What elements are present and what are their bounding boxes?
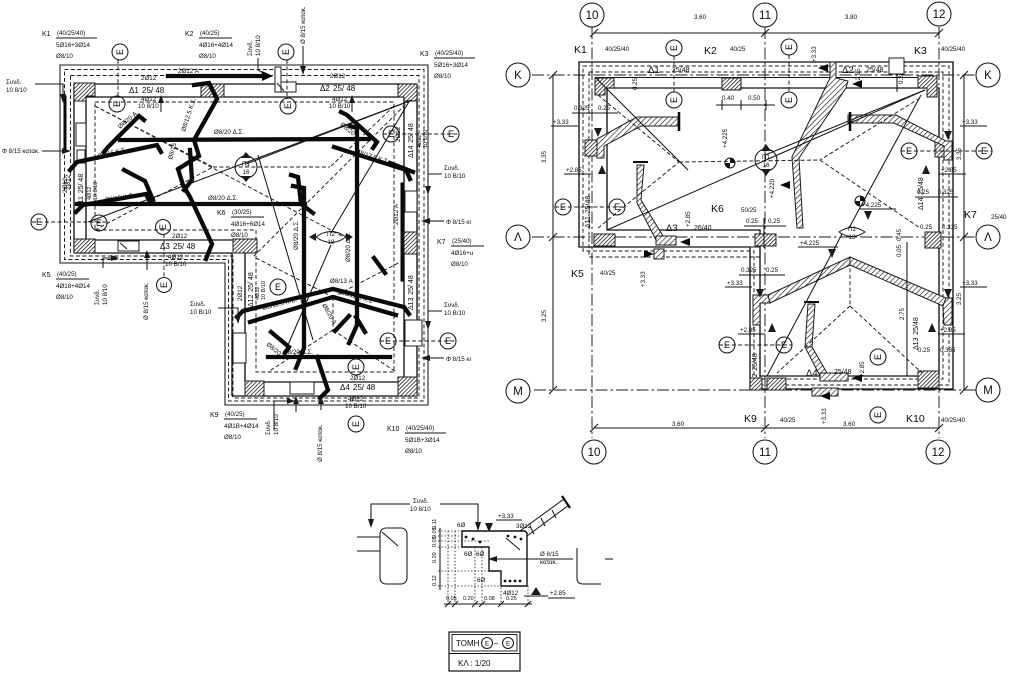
svg-text:10 8/10: 10 8/10 [93,182,99,200]
svg-text:2Ø12: 2Ø12 [350,375,366,382]
svg-text:10 Β/10: 10 Β/10 [444,310,466,317]
svg-text:10 Β/10: 10 Β/10 [261,281,267,300]
svg-text:2Ø12 Α: 2Ø12 Α [178,68,200,75]
svg-text:0.12: 0.12 [432,575,438,586]
svg-text:25/48: 25/48 [866,67,884,74]
svg-text:16: 16 [763,162,770,169]
svg-text:Ε: Ε [115,49,125,55]
svg-text:(40/25/40): (40/25/40) [406,425,434,432]
svg-text:Ε: Ε [275,282,281,292]
svg-text:4Ø1Β+4Ø14: 4Ø1Β+4Ø14 [224,423,259,430]
svg-text:K5: K5 [571,268,584,280]
svg-text:Ø8/10: Ø8/10 [434,73,451,80]
svg-text:Ε: Ε [351,364,361,370]
svg-text:Ø8/20 Δ.Σ.: Ø8/20 Δ.Σ. [293,220,300,250]
svg-text:Ε: Ε [112,101,122,107]
svg-text:Ε: Ε [159,282,169,288]
svg-text:Ε: Ε [96,218,102,228]
svg-text:Ε: Ε [669,97,679,103]
svg-text:(40/25): (40/25) [200,30,220,37]
svg-text:4Ø18+4Ø14: 4Ø18+4Ø14 [56,283,90,290]
svg-text:25/40: 25/40 [991,214,1007,221]
svg-text:Δ11 25/ 48: Δ11 25/ 48 [78,174,85,208]
svg-text:Δ4 25/ 48: Δ4 25/ 48 [340,383,376,392]
svg-text:+2.85: +2.85 [685,211,692,227]
svg-text:Δ1: Δ1 [648,65,660,76]
svg-text:Ε: Ε [669,45,679,51]
svg-text:+2.85: +2.85 [940,327,956,334]
svg-text:0.05: 0.05 [896,244,903,257]
svg-text:0.25: 0.25 [918,347,931,354]
svg-text:+2.85: +2.85 [550,590,566,597]
svg-text:ΚΛ : 1/20: ΚΛ : 1/20 [458,659,491,668]
svg-text:Ε: Ε [448,129,454,139]
svg-text:6Ø: 6Ø [476,551,484,558]
svg-text:Φ 8/15 κατακ.: Φ 8/15 κατακ. [2,148,40,155]
svg-text:Ε: Ε [873,354,883,360]
svg-text:2Ø12: 2Ø12 [395,126,402,142]
svg-text:10 Β/10: 10 Β/10 [190,309,212,316]
svg-text:10 8/10: 10 8/10 [138,103,159,110]
svg-text:2Ø12: 2Ø12 [330,73,346,80]
svg-text:3.25: 3.25 [541,309,548,322]
svg-text:10 8/10: 10 8/10 [423,130,429,148]
svg-text:+4.220: +4.220 [769,178,776,198]
svg-text:26/40: 26/40 [694,225,712,232]
svg-text:Ε: Ε [445,336,451,346]
svg-text:Ø8/10: Ø8/10 [199,53,216,60]
svg-text:40/25: 40/25 [730,46,746,53]
svg-text:3.60: 3.60 [672,421,685,428]
svg-text:K2: K2 [704,45,717,57]
svg-text:4Ø12: 4Ø12 [168,254,184,261]
svg-text:(40/25): (40/25) [225,411,245,418]
svg-text:Ε: Ε [388,129,394,139]
svg-text:Ε: Ε [784,44,794,50]
svg-text:10 8/10: 10 8/10 [410,506,431,513]
svg-text:Ø8/10: Ø8/10 [231,232,248,239]
svg-text:2Ø12: 2Ø12 [141,75,157,82]
svg-text:0.08: 0.08 [484,596,495,602]
svg-text:K7: K7 [964,209,977,221]
svg-text:+2.85: +2.85 [855,68,862,84]
svg-text:(40/25/40): (40/25/40) [435,50,463,57]
svg-text:Δ3: Δ3 [666,223,678,234]
svg-text:0.335: 0.335 [942,224,958,231]
svg-text:Ø8/20 Δ.Σ.: Ø8/20 Δ.Σ. [345,232,352,262]
svg-text:50/25: 50/25 [741,207,757,214]
svg-text:Ø 8/15 κατακ.: Ø 8/15 κατακ. [317,424,324,462]
svg-text:Ø8/13 Α: Ø8/13 Α [330,278,354,285]
svg-text:Ε: Ε [784,97,794,103]
svg-text:11: 11 [759,10,771,22]
svg-text:6Ø: 6Ø [477,577,485,584]
svg-text:Συνδ.: Συνδ. [247,40,254,56]
svg-text:0.25: 0.25 [920,224,933,231]
svg-text:+3.33: +3.33 [498,513,514,520]
svg-text:10 Β/10: 10 Β/10 [444,173,466,180]
svg-text:0.25: 0.25 [746,218,759,225]
svg-text:Ε: Ε [981,146,987,156]
svg-text:3.80: 3.80 [845,14,858,21]
svg-text:Ø8/10: Ø8/10 [451,261,468,268]
svg-text:0.25: 0.25 [768,218,781,225]
svg-text:+3.33: +3.33 [553,119,569,126]
svg-text:0.25: 0.25 [917,189,930,196]
svg-text:Δ1 25/ 48: Δ1 25/ 48 [129,86,165,95]
svg-text:3.60: 3.60 [843,421,856,428]
svg-text:3.60: 3.60 [694,14,707,21]
svg-text:5Ø16+3Ø14: 5Ø16+3Ø14 [434,62,468,69]
svg-text:(40/25/40): (40/25/40) [57,30,85,37]
svg-text:Δ13 25/ 48: Δ13 25/ 48 [408,275,415,310]
svg-text:(40/25): (40/25) [57,271,77,278]
svg-text:Ø 8/15 κατακ.: Ø 8/15 κατακ. [143,282,150,320]
svg-text:K1: K1 [42,31,51,38]
svg-text:16: 16 [243,169,250,176]
svg-text:Ε: Ε [351,421,361,427]
svg-text:3Ø12: 3Ø12 [516,523,532,530]
svg-text:Δ2 25/ 48: Δ2 25/ 48 [320,84,356,93]
svg-text:Συνδ.: Συνδ. [94,289,101,305]
svg-text:10 Β/10: 10 Β/10 [345,403,367,410]
svg-text:+4.225: +4.225 [862,202,882,209]
svg-text:K10: K10 [387,426,400,433]
svg-text:ΤΟΜΗ: ΤΟΜΗ [456,639,480,648]
svg-text:2Ø12 Α: 2Ø12 Α [393,203,400,225]
svg-text:K2: K2 [185,31,194,38]
svg-text:K9: K9 [744,413,757,425]
svg-text:3.25: 3.25 [956,292,963,305]
svg-text:Ø8/10: Ø8/10 [56,294,73,301]
svg-text:40/25/40: 40/25/40 [941,417,966,424]
svg-text:0.45: 0.45 [896,228,903,241]
svg-text:Ø8/10: Ø8/10 [224,434,241,441]
svg-text:Π2: Π2 [848,226,856,233]
svg-text:Συνδ.: Συνδ. [6,79,22,86]
svg-text:0.25: 0.25 [506,596,517,602]
svg-text:Δ13 25/48: Δ13 25/48 [913,317,920,350]
svg-text:Συνδ.: Συνδ. [444,302,460,309]
svg-text:0.50: 0.50 [748,95,761,102]
svg-text:Συνδ.: Συνδ. [444,165,460,172]
svg-text:Ε: Ε [906,146,912,156]
svg-text:Ø8/10: Ø8/10 [56,53,73,60]
svg-text:K6: K6 [711,203,724,215]
svg-text:+4.225: +4.225 [800,240,820,247]
svg-text:0.325: 0.325 [741,267,757,274]
svg-text:Ε: Ε [724,340,730,350]
svg-text:+2.85: +2.85 [740,327,756,334]
svg-text:K: K [984,70,992,82]
svg-text:Δ2: Δ2 [842,65,854,76]
svg-text:10 Β/10: 10 Β/10 [329,103,351,110]
svg-text:+3.33: +3.33 [640,271,647,287]
svg-text:K: K [514,70,522,82]
svg-text:Λ: Λ [514,232,522,244]
svg-text:Π2: Π2 [327,231,335,238]
svg-text:Ε: Ε [283,103,293,109]
svg-text:Ε: Ε [873,412,883,418]
svg-text:Ε: Ε [36,217,42,227]
svg-text:Ε: Ε [506,640,510,647]
svg-text:Ε: Ε [560,202,566,212]
svg-text:K7: K7 [437,239,446,246]
svg-text:10 8/10: 10 8/10 [255,35,262,56]
svg-text:5Ø16+3Ø14: 5Ø16+3Ø14 [56,42,90,49]
svg-text:2Ø12: 2Ø12 [237,285,244,301]
svg-text:+3.33: +3.33 [821,408,828,424]
svg-text:Φ 8/15 κι: Φ 8/15 κι [446,219,472,226]
svg-text:11: 11 [759,447,771,459]
svg-text:Συνδ.: Συνδ. [265,419,272,435]
svg-text:10: 10 [586,10,599,22]
svg-text:Δ4: Δ4 [806,368,818,379]
svg-text:Φ 8/15 κι: Φ 8/15 κι [446,356,472,363]
svg-text:Ε: Ε [781,340,787,350]
svg-text:K3: K3 [914,45,927,57]
svg-text:12: 12 [932,447,945,459]
svg-text:K9: K9 [210,412,219,419]
svg-text:2Ø12: 2Ø12 [62,177,69,193]
svg-text:Συνδ.: Συνδ. [190,301,206,308]
svg-text:4Ø16+4Ø14: 4Ø16+4Ø14 [199,42,233,49]
svg-text:10 8/10: 10 8/10 [102,284,109,305]
svg-text:Λ: Λ [984,232,992,244]
svg-text:0.25: 0.25 [766,267,779,274]
svg-text:–: – [494,639,499,648]
svg-text:10 Β/10: 10 Β/10 [165,261,187,268]
svg-text:+3.33: +3.33 [727,280,743,287]
svg-text:3.35: 3.35 [541,150,548,163]
svg-text:25/48: 25/48 [672,67,690,74]
svg-text:18: 18 [328,239,335,246]
svg-text:10: 10 [588,447,601,459]
svg-text:25/48: 25/48 [834,369,852,376]
svg-text:6Ø: 6Ø [457,522,465,529]
svg-text:40/25: 40/25 [780,417,796,424]
svg-text:M: M [513,386,523,398]
svg-text:(30/25): (30/25) [232,209,252,216]
svg-text:+3.33: +3.33 [962,119,978,126]
svg-text:3.35: 3.35 [956,147,963,160]
svg-text:Ø8/10: Ø8/10 [405,448,422,455]
svg-text:40/25: 40/25 [600,270,616,277]
svg-text:K3: K3 [420,51,429,58]
svg-text:+2.85: +2.85 [941,167,957,174]
svg-text:K5: K5 [42,272,51,279]
svg-text:0.335: 0.335 [940,347,956,354]
svg-text:(25/40): (25/40) [452,238,472,245]
svg-text:Ø8/20 Δ.Σ.: Ø8/20 Δ.Σ. [214,129,244,136]
svg-text:K1: K1 [574,44,587,56]
svg-text:+4.225: +4.225 [722,128,729,148]
svg-text:Ø 8/15 κατακ.: Ø 8/15 κατακ. [300,6,307,44]
svg-text:0.325: 0.325 [574,105,590,112]
svg-text:Π1: Π1 [242,161,250,168]
svg-text:Ε: Ε [385,336,391,346]
svg-text:+3.33: +3.33 [811,46,818,62]
svg-text:0.20: 0.20 [432,552,438,563]
svg-text:Ε: Ε [614,202,620,212]
svg-text:2.75: 2.75 [899,307,906,320]
svg-text:4Ø12: 4Ø12 [332,96,348,103]
svg-text:Δ3 25/ 48: Δ3 25/ 48 [160,242,196,251]
svg-text:+3.33: +3.33 [962,280,978,287]
svg-text:5Ø1Β+3Ø14: 5Ø1Β+3Ø14 [405,437,440,444]
svg-text:0.40: 0.40 [722,95,735,102]
svg-text:Ε: Ε [281,49,291,55]
svg-text:0.325: 0.325 [938,189,954,196]
svg-text:4Ø12: 4Ø12 [141,96,157,103]
svg-text:Δ11 25/48: Δ11 25/48 [585,196,592,228]
svg-text:Ø8/20 Δ.Σ.: Ø8/20 Δ.Σ. [283,349,313,356]
svg-text:40/25/40: 40/25/40 [605,46,630,53]
svg-text:Δ12 25/ 48: Δ12 25/ 48 [248,272,255,307]
svg-text:K6: K6 [217,210,226,217]
svg-text:10 8/10: 10 8/10 [6,87,27,94]
svg-text:Ø8/20 Δ.Σ.: Ø8/20 Δ.Σ. [208,195,238,202]
svg-text:Δ14 25/ 48: Δ14 25/ 48 [408,123,415,158]
svg-text:κατακ.: κατακ. [540,559,558,566]
svg-text:K10: K10 [906,413,925,425]
svg-text:+2.85: +2.85 [859,361,866,377]
svg-text:0.05: 0.05 [446,596,457,602]
svg-text:Ε: Ε [158,224,168,230]
svg-text:Συνδ.: Συνδ. [413,498,429,505]
svg-text:4Ø12: 4Ø12 [348,396,364,403]
svg-text:6Ø: 6Ø [464,551,472,558]
svg-text:Π1: Π1 [762,154,770,161]
svg-text:Ø 8/15: Ø 8/15 [540,551,559,558]
svg-text:0.25: 0.25 [598,105,611,112]
svg-text:M: M [983,385,993,397]
svg-text:12: 12 [933,9,946,21]
svg-text:40/25/40: 40/25/40 [941,46,966,53]
svg-text:18: 18 [849,234,856,241]
svg-text:4Ø16+6Ø14: 4Ø16+6Ø14 [231,221,265,228]
svg-text:4Ø16+u: 4Ø16+u [451,250,474,257]
svg-text:Ε: Ε [485,640,489,647]
svg-text:0.05: 0.05 [432,536,438,547]
svg-text:0.20: 0.20 [463,596,474,602]
svg-text:0.25: 0.25 [632,77,639,90]
svg-text:2Ø12: 2Ø12 [172,233,188,240]
svg-text:+2.85: +2.85 [566,167,582,174]
